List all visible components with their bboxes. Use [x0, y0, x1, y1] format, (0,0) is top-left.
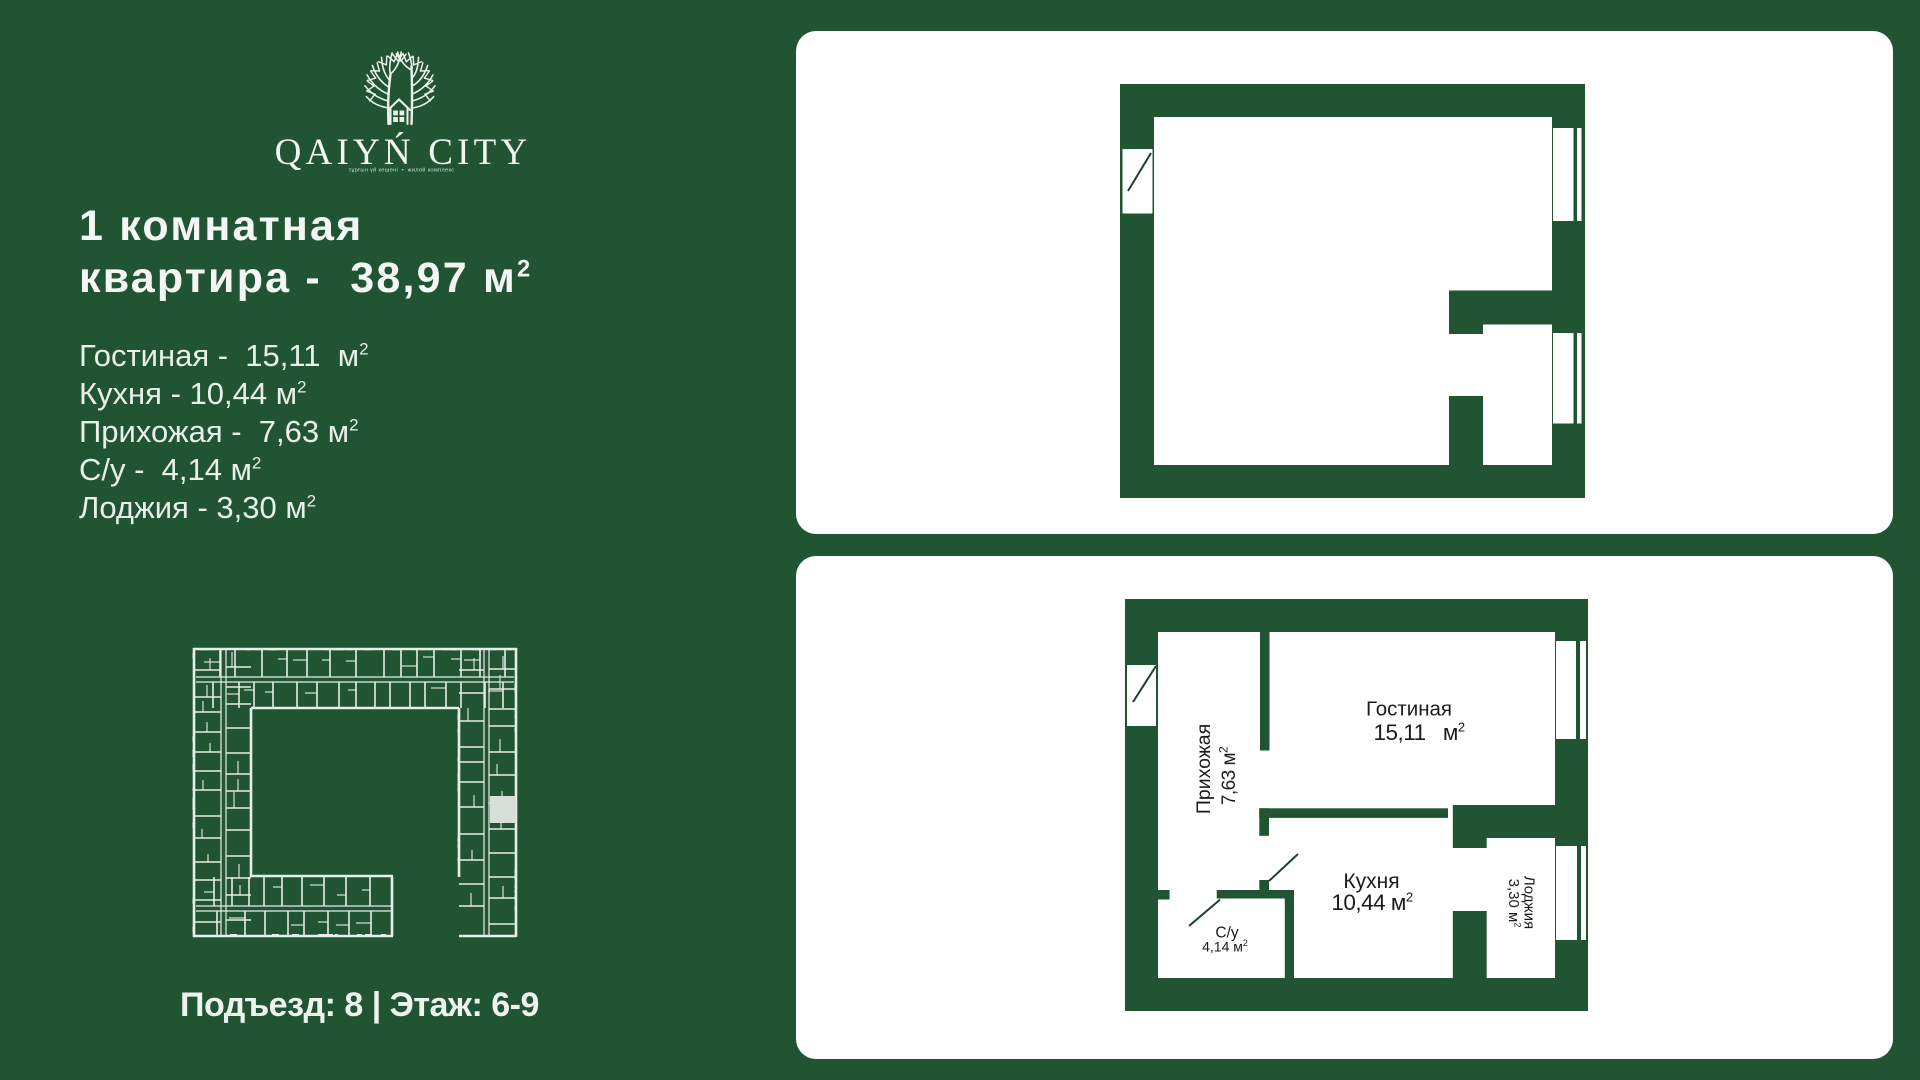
svg-text:Лоджия: Лоджия — [1521, 876, 1538, 929]
svg-text:7,63 м2: 7,63 м2 — [1217, 746, 1241, 805]
svg-text:3,30 м2: 3,30 м2 — [1505, 879, 1523, 928]
svg-text:Прихожая: Прихожая — [1193, 724, 1215, 814]
svg-text:Гостиная: Гостиная — [1366, 698, 1452, 721]
svg-text:4,14 м2: 4,14 м2 — [1202, 938, 1248, 955]
svg-text:10,44 м2: 10,44 м2 — [1331, 890, 1413, 916]
svg-text:15,11 м2: 15,11 м2 — [1373, 720, 1464, 746]
